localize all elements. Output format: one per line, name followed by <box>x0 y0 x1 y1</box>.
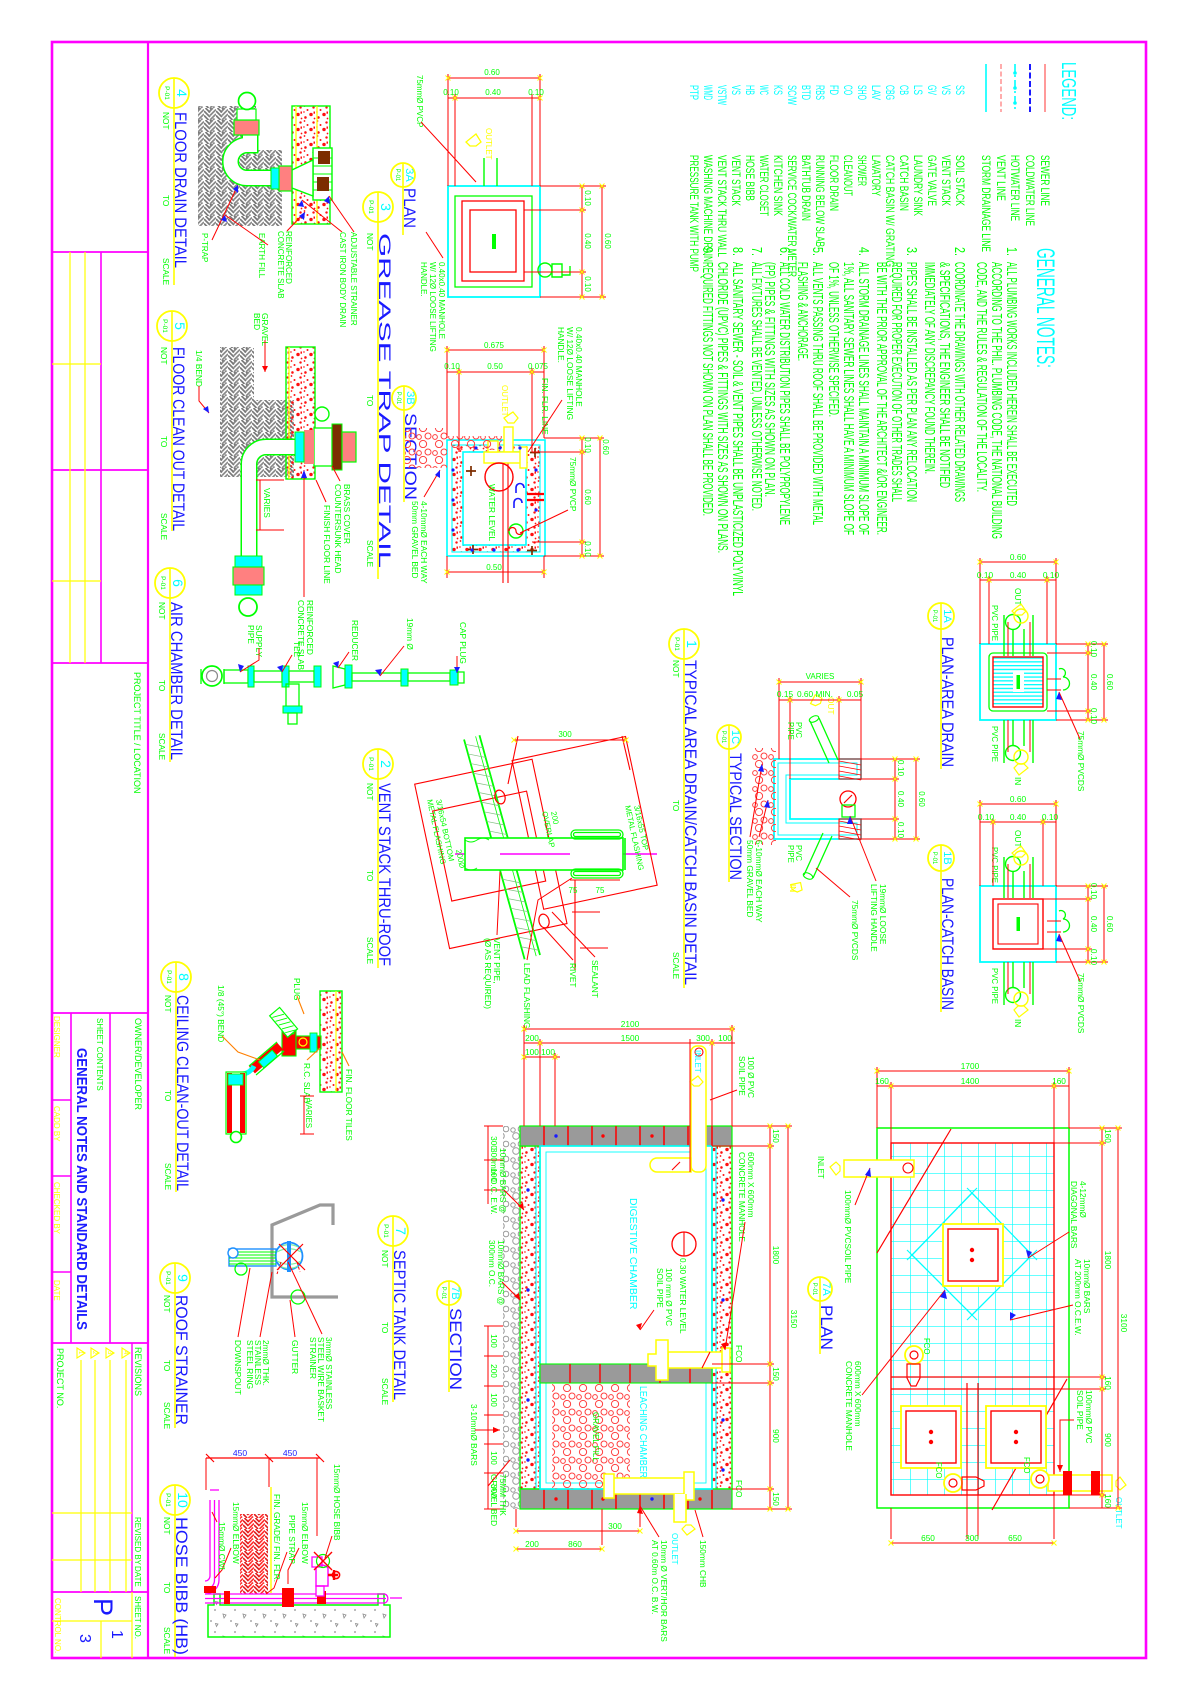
svg-text:50mm GRAVEL BED: 50mm GRAVEL BED <box>745 840 755 917</box>
svg-text:1800: 1800 <box>1103 1251 1113 1270</box>
svg-text:P-01: P-01 <box>720 731 726 744</box>
svg-text:3: 3 <box>76 1634 93 1643</box>
svg-text:HOSE BIBB: HOSE BIBB <box>743 155 757 201</box>
svg-text:150: 150 <box>771 1492 781 1506</box>
svg-text:COLDWATER LINE: COLDWATER LINE <box>1023 155 1037 226</box>
svg-text:STORM DRAINAGE LINE: STORM DRAINAGE LINE <box>979 155 993 252</box>
svg-text:P-01: P-01 <box>163 86 170 100</box>
svg-text:HANDLE.: HANDLE. <box>419 262 428 297</box>
svg-text:WC: WC <box>757 85 771 95</box>
svg-text:3-10mmØ BARS: 3-10mmØ BARS <box>469 1404 479 1466</box>
svg-text:7: 7 <box>393 1227 409 1235</box>
svg-text:HANDLE.: HANDLE. <box>556 327 566 363</box>
svg-text:CEILING CLEAN-OUT DETAIL: CEILING CLEAN-OUT DETAIL <box>173 995 191 1191</box>
svg-text:SHO: SHO <box>855 85 869 100</box>
svg-text:PVC PIPE: PVC PIPE <box>990 968 999 1004</box>
svg-text:VENT STACK: VENT STACK <box>939 155 953 206</box>
svg-text:ADJUSTABLE STRAINER: ADJUSTABLE STRAINER <box>349 232 358 326</box>
svg-text:0.40: 0.40 <box>1010 570 1027 580</box>
svg-text:0.50: 0.50 <box>487 362 503 371</box>
svg-text:P-01: P-01 <box>159 576 166 590</box>
svg-text:FIN. FLOOR TILES: FIN. FLOOR TILES <box>344 1069 354 1141</box>
svg-text:0.60: 0.60 <box>603 233 612 249</box>
svg-text:BATHTUB DRAIN: BATHTUB DRAIN <box>799 155 813 221</box>
svg-text:PLAN-AREA DRAIN: PLAN-AREA DRAIN <box>938 637 956 767</box>
svg-text:75mmØ PVCDS: 75mmØ PVCDS <box>1076 731 1086 792</box>
svg-text:PIPE: PIPE <box>786 845 795 863</box>
svg-text:P-01: P-01 <box>811 1283 817 1296</box>
svg-text:VARIES: VARIES <box>806 672 835 681</box>
svg-text:5.: 5. <box>809 247 826 256</box>
svg-text:9.: 9. <box>699 247 716 256</box>
svg-text:3B: 3B <box>404 391 416 404</box>
svg-text:PVC PIPE: PVC PIPE <box>990 605 999 641</box>
svg-text:CHECKED BY: CHECKED BY <box>52 1182 61 1235</box>
svg-text:2.: 2. <box>951 247 968 256</box>
svg-text:INLET: INLET <box>816 1156 825 1179</box>
svg-text:P-01: P-01 <box>931 852 937 865</box>
svg-text:75: 75 <box>569 886 578 895</box>
svg-text:100: 100 <box>489 1393 499 1407</box>
svg-text:CONTROL NO.: CONTROL NO. <box>53 1598 62 1653</box>
svg-text:0.30 WATER LEVEL: 0.30 WATER LEVEL <box>678 1258 688 1334</box>
svg-text:LS: LS <box>911 85 925 95</box>
svg-text:OUT: OUT <box>1013 830 1023 848</box>
svg-text:VARIES: VARIES <box>262 488 272 518</box>
svg-text:PVC PIPE: PVC PIPE <box>990 847 999 883</box>
svg-text:SCALE: SCALE <box>380 1378 390 1406</box>
svg-text:HOTWATER LINE: HOTWATER LINE <box>1008 155 1022 221</box>
svg-text:2100: 2100 <box>621 1019 640 1029</box>
svg-text:SHEET CONTENTS: SHEET CONTENTS <box>95 1018 104 1091</box>
svg-text:CO: CO <box>841 85 855 95</box>
svg-text:P-TRAP: P-TRAP <box>200 233 209 262</box>
svg-text:NOT: NOT <box>159 347 169 365</box>
svg-text:IN: IN <box>1013 777 1023 785</box>
svg-text:TEE: TEE <box>292 641 302 658</box>
svg-text:TO: TO <box>162 1360 172 1372</box>
svg-text:0.10: 0.10 <box>583 276 592 292</box>
svg-text:0.60: 0.60 <box>583 489 592 505</box>
svg-text:P-01: P-01 <box>367 757 374 771</box>
svg-text:75: 75 <box>596 886 605 895</box>
svg-text:200: 200 <box>525 1033 539 1043</box>
svg-text:160: 160 <box>875 1076 889 1086</box>
svg-text:9: 9 <box>175 1274 191 1282</box>
svg-text:COUNTERSUNK HEAD: COUNTERSUNK HEAD <box>333 484 343 573</box>
svg-text:SC/W: SC/W <box>785 85 799 105</box>
svg-text:INLET: INLET <box>693 1050 702 1073</box>
svg-text:CLEANOUT: CLEANOUT <box>841 155 855 196</box>
svg-text:3.: 3. <box>903 247 920 256</box>
svg-text:TYPICAL SECTION: TYPICAL SECTION <box>726 753 744 880</box>
svg-text:4: 4 <box>174 89 190 97</box>
svg-text:DOWNSPOUT: DOWNSPOUT <box>233 1340 243 1395</box>
svg-text:PIPE STRAP: PIPE STRAP <box>287 1515 297 1564</box>
svg-text:VENT STACK: VENT STACK <box>729 155 743 206</box>
svg-text:P-01: P-01 <box>161 319 168 333</box>
svg-text:3100: 3100 <box>1119 1314 1129 1333</box>
svg-text:VENT STACK THRU-ROOF: VENT STACK THRU-ROOF <box>375 783 393 966</box>
svg-text:7B: 7B <box>449 1286 461 1299</box>
svg-text:FCO: FCO <box>1022 1457 1031 1473</box>
svg-text:0.40: 0.40 <box>1089 916 1099 933</box>
svg-text:CADD BY: CADD BY <box>52 1106 61 1142</box>
svg-text:TO: TO <box>163 1090 173 1102</box>
svg-text:0.10: 0.10 <box>583 437 592 453</box>
svg-text:7A: 7A <box>820 1282 832 1296</box>
svg-text:FLOOR CLEAN OUT DETAIL: FLOOR CLEAN OUT DETAIL <box>169 347 187 531</box>
svg-text:1700: 1700 <box>961 1061 980 1071</box>
svg-text:CODE, AND THE RULES & REGULATI: CODE, AND THE RULES & REGULATION OF THE … <box>973 262 990 492</box>
svg-text:160: 160 <box>1052 1076 1066 1086</box>
svg-text:SEPTIC TANK DETAIL: SEPTIC TANK DETAIL <box>390 1250 408 1400</box>
svg-text:GENERAL NOTES AND STANDARD: GENERAL NOTES AND STANDARD DETAILS <box>73 1048 90 1330</box>
svg-text:CONCRETE SLAB: CONCRETE SLAB <box>296 600 306 671</box>
svg-text:SCALE: SCALE <box>163 1163 173 1191</box>
svg-text:75mmØ PVCP: 75mmØ PVCP <box>568 457 578 512</box>
svg-text:LIFTING HANDLE: LIFTING HANDLE <box>869 884 879 952</box>
svg-text:8.: 8. <box>729 247 746 256</box>
svg-text:P-01: P-01 <box>164 1493 171 1507</box>
svg-text:VARIES: VARIES <box>304 1100 313 1128</box>
svg-text:0.10: 0.10 <box>583 190 592 206</box>
svg-text:LEAD FLASHING: LEAD FLASHING <box>522 963 532 1028</box>
svg-text:3150: 3150 <box>789 1310 799 1329</box>
svg-text:P-01: P-01 <box>440 1287 446 1300</box>
svg-text:P-01: P-01 <box>394 169 400 182</box>
svg-text:SOIL PIPE: SOIL PIPE <box>1075 1390 1085 1430</box>
svg-text:300: 300 <box>608 1521 622 1531</box>
svg-text:6.: 6. <box>776 247 793 256</box>
svg-text:OF 1%, UNLESS OTHERWISE SPECIF: OF 1%, UNLESS OTHERWISE SPECIFED. <box>825 262 842 417</box>
svg-text:CONCRETE SLAB: CONCRETE SLAB <box>276 231 285 299</box>
svg-text:KS: KS <box>771 85 785 95</box>
svg-text:0.40: 0.40 <box>583 233 592 249</box>
svg-text:REVISED BY: REVISED BY <box>133 1517 142 1566</box>
svg-text:P-01: P-01 <box>673 637 680 651</box>
svg-text:TYPICAL AREA DRAIN/CATCH BASIN: TYPICAL AREA DRAIN/CATCH BASIN DETAIL <box>681 660 699 985</box>
svg-text:P: P <box>88 1598 118 1616</box>
svg-text:DATE: DATE <box>52 1280 61 1301</box>
svg-text:FCO: FCO <box>922 1338 931 1354</box>
svg-text:3A: 3A <box>403 168 415 182</box>
svg-text:BED: BED <box>252 313 262 330</box>
svg-text:OUTLET: OUTLET <box>500 385 509 417</box>
svg-text:CAP PLUG: CAP PLUG <box>458 622 468 664</box>
svg-text:4.: 4. <box>855 247 872 256</box>
svg-text:ALL FIXTURES SHALL BE VENTED,: ALL FIXTURES SHALL BE VENTED, UNLESS OTH… <box>748 262 765 511</box>
svg-text:WMD: WMD <box>701 85 715 100</box>
svg-text:BTD: BTD <box>799 85 813 100</box>
svg-text:SCALE: SCALE <box>161 258 171 286</box>
svg-text:150mm CHB: 150mm CHB <box>698 1540 708 1588</box>
svg-text:DIAGONAL BARS: DIAGONAL BARS <box>1069 1181 1079 1249</box>
svg-text:TO: TO <box>380 1322 390 1334</box>
svg-text:AT 200mm O.C.E.W.: AT 200mm O.C.E.W. <box>1073 1259 1083 1336</box>
svg-text:TO: TO <box>159 436 169 448</box>
svg-text:REVISIONS: REVISIONS <box>133 1347 143 1396</box>
svg-text:150: 150 <box>771 1129 781 1143</box>
svg-text:VSTW: VSTW <box>715 85 729 105</box>
svg-text:1A: 1A <box>941 609 953 623</box>
svg-text:SOIL STACK: SOIL STACK <box>953 155 967 206</box>
svg-text:0.675: 0.675 <box>484 341 505 350</box>
svg-text:FINISH FLOOR LINE: FINISH FLOOR LINE <box>322 505 332 584</box>
svg-text:650: 650 <box>1008 1533 1022 1543</box>
svg-text:860: 860 <box>568 1539 582 1549</box>
svg-text:P-01: P-01 <box>382 1224 389 1238</box>
svg-text:GENERAL NOTES:: GENERAL NOTES: <box>1031 248 1059 368</box>
svg-text:CONCRETE MANHOLE: CONCRETE MANHOLE <box>844 1361 854 1451</box>
svg-text:450: 450 <box>233 1448 247 1458</box>
svg-text:5: 5 <box>172 322 188 330</box>
svg-text:0.10: 0.10 <box>896 822 906 839</box>
svg-text:15mmØ ELBOW: 15mmØ ELBOW <box>231 1502 241 1564</box>
svg-text:P-01: P-01 <box>164 1271 171 1285</box>
svg-text:1/8 (45°) BEND: 1/8 (45°) BEND <box>216 985 226 1042</box>
svg-text:FLOOR DRAIN: FLOOR DRAIN <box>827 155 841 211</box>
svg-text:P-01: P-01 <box>367 200 374 214</box>
svg-text:0.40: 0.40 <box>896 791 906 808</box>
svg-text:GREASE TRAP DETAIL: GREASE TRAP DETAIL <box>375 233 393 568</box>
svg-text:STRAINER: STRAINER <box>308 1337 318 1379</box>
svg-text:PROJECT TITLE / LOCATION: PROJECT TITLE / LOCATION <box>132 672 142 794</box>
svg-text:1: 1 <box>684 640 700 648</box>
svg-text:FCO: FCO <box>734 1345 744 1363</box>
svg-text:1/4 BEND: 1/4 BEND <box>194 350 204 387</box>
svg-text:TO: TO <box>671 800 681 812</box>
svg-text:300: 300 <box>558 730 572 739</box>
svg-text:100: 100 <box>718 1033 732 1043</box>
svg-text:WATER CLOSET: WATER CLOSET <box>757 155 771 216</box>
svg-text:NOT: NOT <box>380 1250 390 1268</box>
svg-text:75mmØ PVCDS: 75mmØ PVCDS <box>1076 973 1086 1034</box>
svg-text:NOT: NOT <box>162 1517 172 1535</box>
svg-text:RBS: RBS <box>813 85 827 100</box>
svg-text:NOT: NOT <box>162 1295 172 1313</box>
svg-text:15mmØ CWL: 15mmØ CWL <box>217 1522 227 1573</box>
svg-text:NOT: NOT <box>161 112 171 130</box>
svg-text:200: 200 <box>489 1364 499 1378</box>
svg-text:160: 160 <box>1103 1494 1113 1508</box>
svg-text:DATE: DATE <box>133 1566 142 1587</box>
svg-text:0.60: 0.60 <box>1105 916 1115 933</box>
svg-text:1800: 1800 <box>771 1246 781 1265</box>
svg-text:GRAVEL BED: GRAVEL BED <box>489 1474 499 1526</box>
svg-text:ROOF STRAINER: ROOF STRAINER <box>172 1295 190 1425</box>
svg-text:BE WITH THE PRIOR APPROVAL OF: BE WITH THE PRIOR APPROVAL OF THE ARCHIT… <box>873 262 890 535</box>
svg-text:0.50: 0.50 <box>486 563 502 572</box>
svg-text:15mmØ ELBOW: 15mmØ ELBOW <box>300 1502 310 1564</box>
svg-text:RUNNING BELOW SLAB: RUNNING BELOW SLAB <box>813 155 827 247</box>
svg-text:NOT: NOT <box>163 995 173 1013</box>
svg-text:0.40: 0.40 <box>485 88 501 97</box>
svg-text:75mmØ PVCDS: 75mmØ PVCDS <box>850 900 860 961</box>
svg-text:STEEL RING: STEEL RING <box>245 1340 255 1389</box>
svg-text:TO: TO <box>162 1582 172 1594</box>
svg-text:AT 0.60m O.C. B.W.: AT 0.60m O.C. B.W. <box>650 1540 660 1614</box>
svg-text:PLAN: PLAN <box>817 1305 835 1350</box>
svg-text:TO: TO <box>157 680 167 692</box>
svg-text:300: 300 <box>696 1033 710 1043</box>
svg-text:1C: 1C <box>729 730 741 744</box>
svg-text:FIN. GRADE/ FIN. FLR.: FIN. GRADE/ FIN. FLR. <box>272 1494 282 1582</box>
svg-text:0.60: 0.60 <box>1010 794 1027 804</box>
svg-text:0.10: 0.10 <box>444 362 460 371</box>
svg-text:2: 2 <box>378 760 394 768</box>
svg-text:450: 450 <box>283 1448 297 1458</box>
svg-text:VENT STACK THRU WALL: VENT STACK THRU WALL <box>715 155 729 257</box>
svg-text:100,100: 100,100 <box>525 1047 555 1057</box>
svg-text:P-01: P-01 <box>165 970 172 984</box>
svg-text:OWNER/DEVELOPER: OWNER/DEVELOPER <box>133 1018 143 1111</box>
svg-text:100: 100 <box>489 1451 499 1465</box>
svg-text:1B: 1B <box>941 851 953 864</box>
svg-text:GV: GV <box>925 85 939 95</box>
svg-text:REDUCER: REDUCER <box>350 620 360 661</box>
svg-text:160: 160 <box>1103 1376 1113 1390</box>
svg-text:100mmØ PVCSOIL PIPE: 100mmØ PVCSOIL PIPE <box>843 1190 853 1284</box>
svg-text:0.60: 0.60 <box>917 791 926 807</box>
svg-text:0.10: 0.10 <box>896 760 906 777</box>
svg-text:75mmØ PVCP: 75mmØ PVCP <box>415 75 424 127</box>
svg-text:1400: 1400 <box>961 1076 980 1086</box>
svg-text:0.15: 0.15 <box>777 689 794 699</box>
svg-text:GATE VALVE: GATE VALVE <box>925 155 939 206</box>
svg-text:TO: TO <box>365 870 375 882</box>
svg-text:OUTLET: OUTLET <box>670 1533 679 1565</box>
svg-text:0.40: 0.40 <box>1010 812 1027 822</box>
svg-text:LAVATORY: LAVATORY <box>869 155 883 196</box>
svg-text:NOT: NOT <box>365 783 375 801</box>
svg-text:PVC PIPE: PVC PIPE <box>990 726 999 762</box>
svg-text:LAV: LAV <box>869 85 883 100</box>
svg-text:KITCHEN SINK: KITCHEN SINK <box>771 155 785 216</box>
svg-text:0.60: 0.60 <box>601 439 610 455</box>
svg-text:PTP: PTP <box>687 85 701 100</box>
svg-text:0.10: 0.10 <box>583 541 592 557</box>
svg-text:1: 1 <box>108 1630 125 1639</box>
svg-text:PIPE: PIPE <box>786 722 795 740</box>
svg-text:TO: TO <box>161 195 171 207</box>
svg-text:NOT: NOT <box>365 233 375 251</box>
svg-text:0.60: 0.60 <box>1010 552 1027 562</box>
svg-text:NOT: NOT <box>157 602 167 620</box>
svg-text:FCO: FCO <box>934 1462 943 1478</box>
svg-text:(Ø AS REQUIRED): (Ø AS REQUIRED) <box>483 938 493 1009</box>
svg-text:DESIGNER: DESIGNER <box>52 1016 61 1058</box>
svg-text:IMMEDIATELY OF ANY DISCREPANCY: IMMEDIATELY OF ANY DISCREPANCY FOUND THE… <box>921 262 938 474</box>
svg-text:1.: 1. <box>1003 247 1020 256</box>
svg-text:10: 10 <box>175 1492 191 1508</box>
svg-text:SOIL PIPE: SOIL PIPE <box>655 1268 665 1308</box>
svg-text:SEWER LINE: SEWER LINE <box>1038 155 1052 206</box>
svg-text:0.60 MIN.: 0.60 MIN. <box>797 689 833 699</box>
svg-text:CONCRETE MANHOLE: CONCRETE MANHOLE <box>737 1152 747 1242</box>
svg-text:SCALE: SCALE <box>159 513 169 541</box>
svg-text:FD: FD <box>827 85 841 95</box>
svg-text:OUTLET: OUTLET <box>484 128 493 160</box>
svg-text:HOSE BIBB (HB): HOSE BIBB (HB) <box>172 1517 190 1655</box>
svg-text:50mm GRAVEL BED: 50mm GRAVEL BED <box>410 501 420 578</box>
svg-text:CB: CB <box>897 85 911 95</box>
svg-text:7.: 7. <box>748 247 765 256</box>
svg-text:P-01: P-01 <box>395 392 401 405</box>
svg-text:SCALE: SCALE <box>157 733 167 761</box>
svg-text:SCALE: SCALE <box>365 937 375 965</box>
svg-text:SEALANT: SEALANT <box>590 960 600 998</box>
svg-text:FLOOR DRAIN DETAIL: FLOOR DRAIN DETAIL <box>171 112 189 268</box>
svg-text:RIVET: RIVET <box>568 963 578 987</box>
svg-text:0.40x0.40 MANHOLE: 0.40x0.40 MANHOLE <box>437 262 446 339</box>
svg-text:SCALE: SCALE <box>162 1627 172 1655</box>
svg-text:NOT: NOT <box>671 660 681 678</box>
svg-text:W/ 12Ø LOOSE LIFTING: W/ 12Ø LOOSE LIFTING <box>428 262 437 352</box>
svg-text:LEGEND:: LEGEND: <box>1057 62 1079 120</box>
svg-text:WATER LEVEL: WATER LEVEL <box>487 484 497 542</box>
svg-text:LEACHING CHAMBER: LEACHING CHAMBER <box>637 1386 649 1478</box>
svg-text:SCALE: SCALE <box>365 540 375 568</box>
svg-text:300mm O.C. E.W.: 300mm O.C. E.W. <box>489 1148 499 1215</box>
svg-text:0.075: 0.075 <box>528 362 549 371</box>
svg-text:8: 8 <box>176 973 192 981</box>
svg-text:IN: IN <box>1013 1019 1023 1027</box>
svg-text:PLAN-CATCH BASIN: PLAN-CATCH BASIN <box>938 878 956 1010</box>
svg-text:SERVICE COCK/WATER METER: SERVICE COCK/WATER METER <box>785 155 799 277</box>
svg-text:SCALE: SCALE <box>671 952 681 980</box>
svg-text:PLAN: PLAN <box>400 188 418 228</box>
svg-text:CATCH BASIN: CATCH BASIN <box>897 155 911 211</box>
svg-text:300: 300 <box>965 1533 979 1543</box>
svg-text:LAUNDRY SINK: LAUNDRY SINK <box>911 155 925 216</box>
svg-text:AIR CHAMBER DETAIL: AIR CHAMBER DETAIL <box>167 602 185 760</box>
svg-text:CAST IRON BODY DRAIN: CAST IRON BODY DRAIN <box>338 232 347 328</box>
svg-text:VS: VS <box>939 85 953 95</box>
svg-text:6: 6 <box>170 579 186 587</box>
svg-text:150: 150 <box>771 1367 781 1381</box>
svg-text:HB: HB <box>743 85 757 95</box>
svg-text:WASHING MACHINE DRAIN: WASHING MACHINE DRAIN <box>701 155 715 262</box>
svg-text:1500: 1500 <box>621 1033 640 1043</box>
svg-text:900: 900 <box>771 1429 781 1443</box>
svg-text:900: 900 <box>1103 1433 1113 1447</box>
svg-text:CATCH BASIN W/ GRATING: CATCH BASIN W/ GRATING <box>883 155 897 267</box>
svg-text:DIGESTIVE CHAMBER: DIGESTIVE CHAMBER <box>627 1198 639 1310</box>
svg-text:FLASHING & ANCHORAGE.: FLASHING & ANCHORAGE. <box>794 262 811 361</box>
svg-text:300mm O.C.: 300mm O.C. <box>487 1240 497 1287</box>
svg-text:SHOWER: SHOWER <box>855 155 869 186</box>
svg-text:TO: TO <box>365 395 375 407</box>
svg-text:200: 200 <box>525 1539 539 1549</box>
svg-text:650: 650 <box>921 1533 935 1543</box>
svg-text:OUT: OUT <box>1013 588 1023 606</box>
svg-text:PRESSURE TANK WITH PUMP: PRESSURE TANK WITH PUMP <box>687 155 701 272</box>
svg-text:P-01: P-01 <box>931 610 937 623</box>
svg-text:PROJECT NO.: PROJECT NO. <box>55 1348 65 1408</box>
svg-text:0.60: 0.60 <box>1105 674 1115 691</box>
svg-text:19mm Ø: 19mm Ø <box>405 618 415 650</box>
svg-text:SECTION: SECTION <box>446 1308 464 1390</box>
svg-text:CBG: CBG <box>883 85 897 100</box>
svg-text:15mmØ HOSE BIBB: 15mmØ HOSE BIBB <box>332 1464 342 1541</box>
svg-text:0.40: 0.40 <box>1089 674 1099 691</box>
svg-text:100: 100 <box>489 1334 499 1348</box>
svg-text:GRAVEL FILL: GRAVEL FILL <box>591 1412 600 1462</box>
svg-text:0.60: 0.60 <box>484 68 500 77</box>
svg-text:VENT LINE: VENT LINE <box>994 155 1008 201</box>
svg-text:SHEET NO.: SHEET NO. <box>133 1596 142 1639</box>
